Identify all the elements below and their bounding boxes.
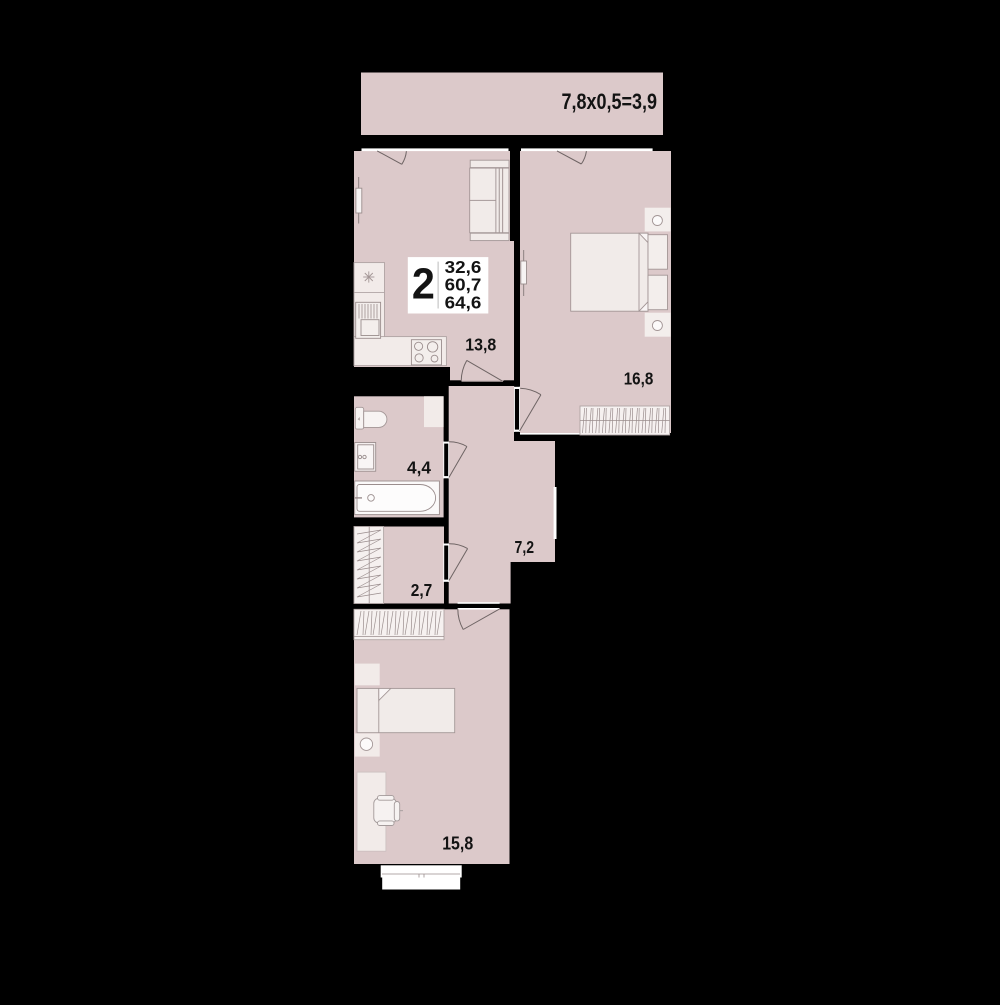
svg-text:16,8: 16,8 (624, 369, 654, 389)
svg-text:2,7: 2,7 (411, 580, 433, 600)
svg-text:7,8x0,5=3,9: 7,8x0,5=3,9 (562, 89, 658, 114)
svg-text:64,6: 64,6 (445, 292, 482, 312)
svg-text:13,8: 13,8 (465, 335, 496, 355)
svg-text:4,4: 4,4 (407, 457, 431, 477)
svg-text:2: 2 (412, 259, 435, 308)
svg-text:7,2: 7,2 (515, 537, 535, 557)
svg-text:15,8: 15,8 (442, 834, 473, 854)
